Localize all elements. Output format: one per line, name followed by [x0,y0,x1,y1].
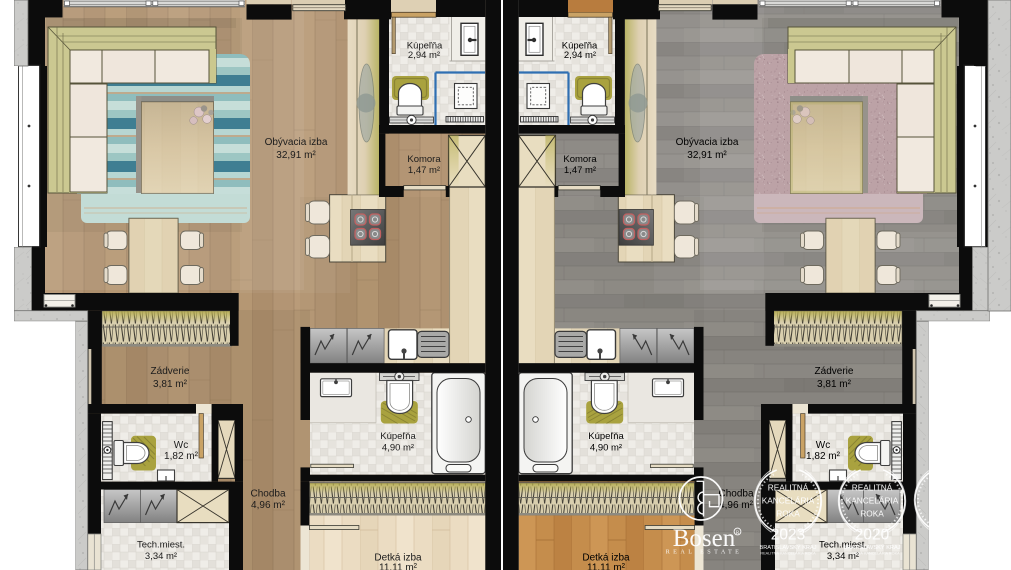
svg-text:Komora: Komora [407,154,441,165]
svg-text:KANCELÁRIA: KANCELÁRIA [762,496,815,506]
svg-text:1,82 m²: 1,82 m² [164,451,199,462]
svg-text:3,81 m²: 3,81 m² [153,379,188,390]
svg-text:2023: 2023 [771,527,805,544]
svg-text:3,34 m²: 3,34 m² [145,551,177,562]
svg-text:Obývacia izba: Obývacia izba [676,137,739,148]
svg-text:Tech.miest.: Tech.miest. [137,540,185,551]
svg-text:REALITNÁ KANCELÁRIA ROKA: REALITNÁ KANCELÁRIA ROKA [844,552,900,556]
svg-text:3,81 m²: 3,81 m² [817,379,852,390]
svg-text:REALITNÁ: REALITNÁ [852,483,893,493]
svg-text:BRATISLAVSKÝ KRAJ: BRATISLAVSKÝ KRAJ [760,544,817,551]
svg-text:Wc: Wc [816,440,830,451]
svg-text:Zádverie: Zádverie [151,366,190,377]
svg-text:1,47 m²: 1,47 m² [564,165,596,176]
svg-text:2,94 m²: 2,94 m² [408,50,440,61]
svg-text:4,90 m²: 4,90 m² [590,443,622,454]
svg-text:4,90 m²: 4,90 m² [382,443,414,454]
svg-text:11,11 m²: 11,11 m² [379,563,418,570]
svg-text:Zádverie: Zádverie [815,366,854,377]
svg-text:11,11 m²: 11,11 m² [587,563,626,570]
svg-text:ROKA: ROKA [776,509,800,519]
svg-text:REALITNÁ KANCELÁRIA ROKA: REALITNÁ KANCELÁRIA ROKA [760,552,816,556]
svg-text:Chodba: Chodba [718,489,753,500]
svg-text:2020: 2020 [855,527,890,544]
svg-text:Kúpeľňa: Kúpeľňa [380,431,416,442]
svg-text:32,91 m²: 32,91 m² [687,150,727,161]
svg-text:4,96 m²: 4,96 m² [719,500,754,511]
svg-text:2,94 m²: 2,94 m² [564,50,596,61]
svg-text:BRATISLAVSKÝ KRAJ: BRATISLAVSKÝ KRAJ [844,544,901,551]
svg-text:ROKA: ROKA [860,509,884,519]
svg-text:Kúpeľňa: Kúpeľňa [588,431,624,442]
svg-text:REAL ESTATE: REAL ESTATE [666,549,743,556]
svg-text:Obývacia izba: Obývacia izba [265,137,328,148]
svg-text:KANCELÁRIA: KANCELÁRIA [846,496,899,506]
svg-text:Komora: Komora [563,154,597,165]
svg-text:1,82 m²: 1,82 m² [806,451,841,462]
svg-text:1,47 m²: 1,47 m² [408,165,440,176]
svg-text:4,96 m²: 4,96 m² [251,500,286,511]
svg-text:Wc: Wc [174,440,188,451]
svg-text:REALITNÁ: REALITNÁ [768,483,809,493]
svg-text:32,91 m²: 32,91 m² [276,150,316,161]
svg-text:Chodba: Chodba [250,489,285,500]
